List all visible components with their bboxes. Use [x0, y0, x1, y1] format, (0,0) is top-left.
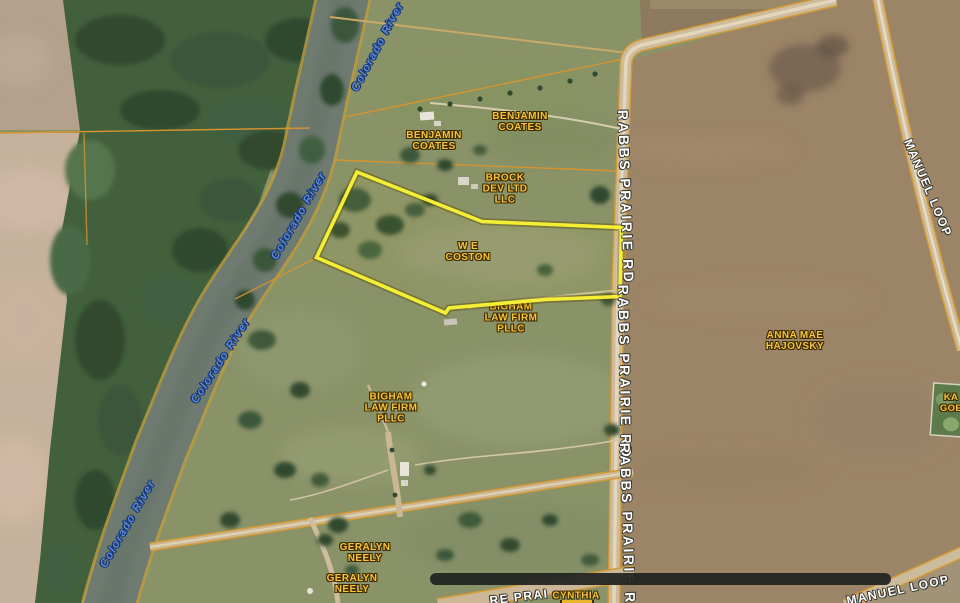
owner-name-line: BROCK: [483, 173, 528, 184]
road-label-rabbs-prairie-2: RABBS PRAIRIE RD: [615, 285, 634, 460]
owner-label-anna-mae-hajovsky: ANNA MAE HAJOVSKY: [766, 330, 824, 352]
owner-label-brock-dev-ltd: BROCK DEV LTD LLC: [483, 173, 528, 206]
road-label-manuel-loop-1: MANUEL LOOP: [901, 137, 955, 239]
owner-name-line: BENJAMIN: [406, 130, 461, 141]
owner-name-line: GOE: [940, 403, 960, 414]
owner-label-bigham-law-firm-2: BIGHAM LAW FIRM PLLC: [365, 392, 418, 425]
owner-name-line: COATES: [406, 141, 461, 152]
river-label-1: Colorado River: [349, 0, 406, 93]
owner-name-line: BENJAMIN: [492, 111, 547, 122]
map-canvas[interactable]: BIGHAM LAW FIRM PLLC Colorado River Colo…: [0, 0, 960, 603]
owner-name-line: GERALYN: [340, 542, 391, 553]
owner-label-geralyn-neely-2: GERALYN NEELY: [327, 573, 378, 595]
owner-name-line: COATES: [492, 122, 547, 133]
owner-name-line: NEELY: [340, 553, 391, 564]
river-label-4: Colorado River: [98, 478, 158, 570]
owner-label-benjamin-coates-1: BENJAMIN COATES: [406, 130, 461, 152]
owner-name-line: GERALYN: [327, 573, 378, 584]
owner-name-line: LLC: [483, 195, 528, 206]
progress-bar[interactable]: [430, 573, 891, 585]
owner-name-line: NEELY: [327, 584, 378, 595]
road-label-bottom-fragment: RE PRAI: [489, 586, 549, 603]
owner-name-line: KA: [940, 392, 960, 403]
road-label-rabbs-prairie-1: RABBS PRAIRIE RD: [615, 109, 637, 284]
owner-name-line: ANNA MAE: [766, 330, 824, 341]
owner-name-line: COSTON: [446, 252, 491, 263]
owner-label-geralyn-neely-1: GERALYN NEELY: [340, 542, 391, 564]
owner-name-line: W E: [446, 241, 491, 252]
map-labels: Colorado River Colorado River Colorado R…: [0, 0, 960, 603]
owner-name-line: HAJOVSKY: [766, 341, 824, 352]
owner-name-line: PLLC: [365, 414, 418, 425]
owner-name-line: BIGHAM: [365, 392, 418, 403]
owner-name-line: LAW FIRM: [365, 403, 418, 414]
owner-name-line: DEV LTD: [483, 184, 528, 195]
river-label-3: Colorado River: [189, 316, 253, 406]
owner-label-partial-right-edge: KA GOE: [940, 392, 960, 414]
river-label-2: Colorado River: [269, 170, 329, 262]
owner-label-we-coston: W E COSTON: [446, 241, 491, 263]
owner-label-benjamin-coates-2: BENJAMIN COATES: [492, 111, 547, 133]
